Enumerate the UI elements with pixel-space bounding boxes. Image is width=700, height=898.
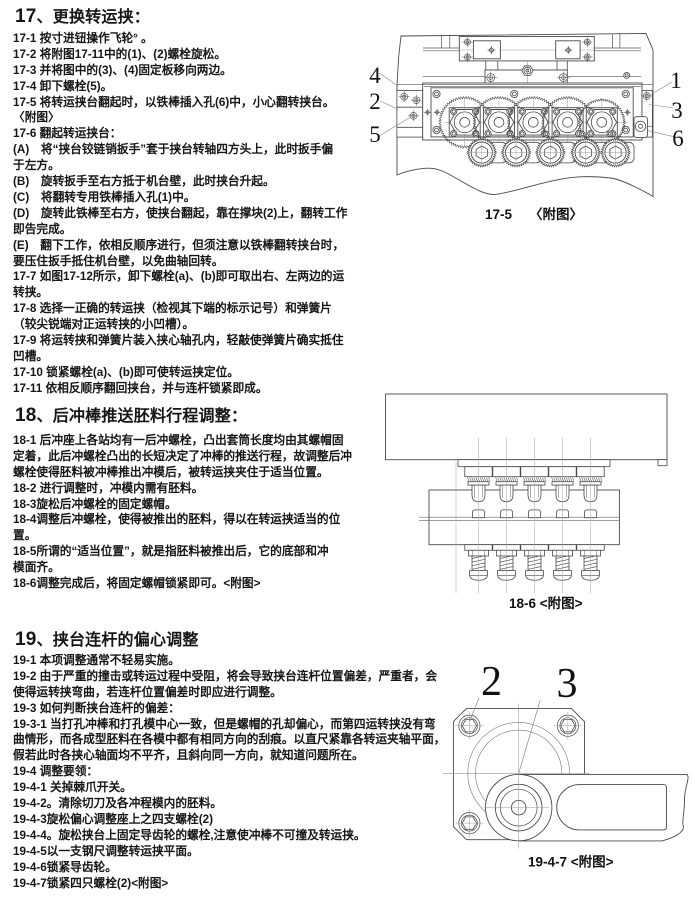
svg-text:19-4-7 <附图>: 19-4-7 <附图> bbox=[528, 854, 614, 870]
svg-text:〈附图〉: 〈附图〉 bbox=[529, 206, 583, 222]
svg-text:4: 4 bbox=[369, 63, 381, 88]
svg-text:6: 6 bbox=[672, 126, 684, 151]
svg-text:2: 2 bbox=[481, 659, 502, 705]
svg-text:5: 5 bbox=[369, 122, 381, 147]
svg-text:17-5: 17-5 bbox=[485, 207, 513, 222]
svg-text:18-6 <附图>: 18-6 <附图> bbox=[509, 595, 583, 611]
svg-text:1: 1 bbox=[670, 68, 682, 93]
svg-text:3: 3 bbox=[671, 98, 683, 123]
svg-text:2: 2 bbox=[369, 89, 381, 114]
svg-text:3: 3 bbox=[557, 661, 578, 707]
